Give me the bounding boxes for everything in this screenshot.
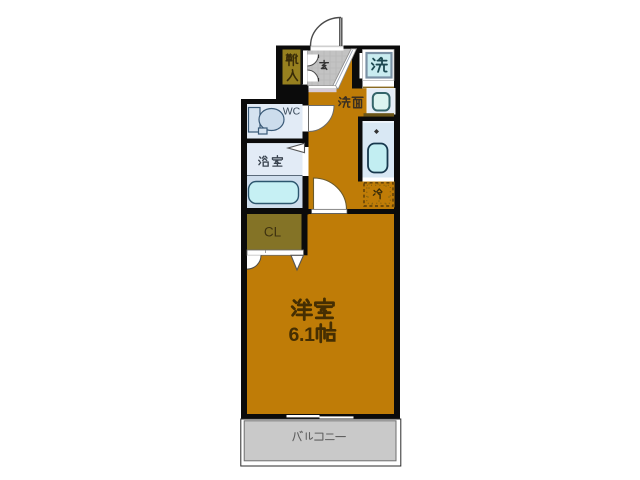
svg-text:WC: WC xyxy=(283,106,301,118)
svg-text:CL: CL xyxy=(264,225,282,240)
svg-text:6.1: 6.1 xyxy=(289,324,316,346)
